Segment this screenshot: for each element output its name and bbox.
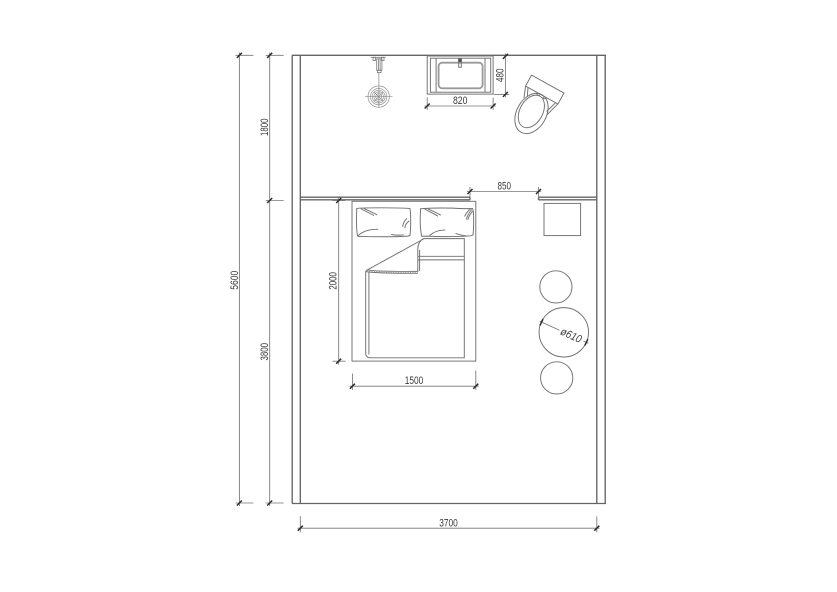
svg-text:850: 850 [498,180,512,192]
svg-text:2000: 2000 [327,272,339,290]
svg-text:820: 820 [453,95,468,107]
svg-text:3700: 3700 [439,517,458,529]
svg-text:5600: 5600 [229,271,241,290]
svg-text:1800: 1800 [259,119,271,137]
svg-text:480: 480 [495,69,507,83]
svg-text:3800: 3800 [259,343,271,361]
svg-text:1500: 1500 [405,375,424,387]
